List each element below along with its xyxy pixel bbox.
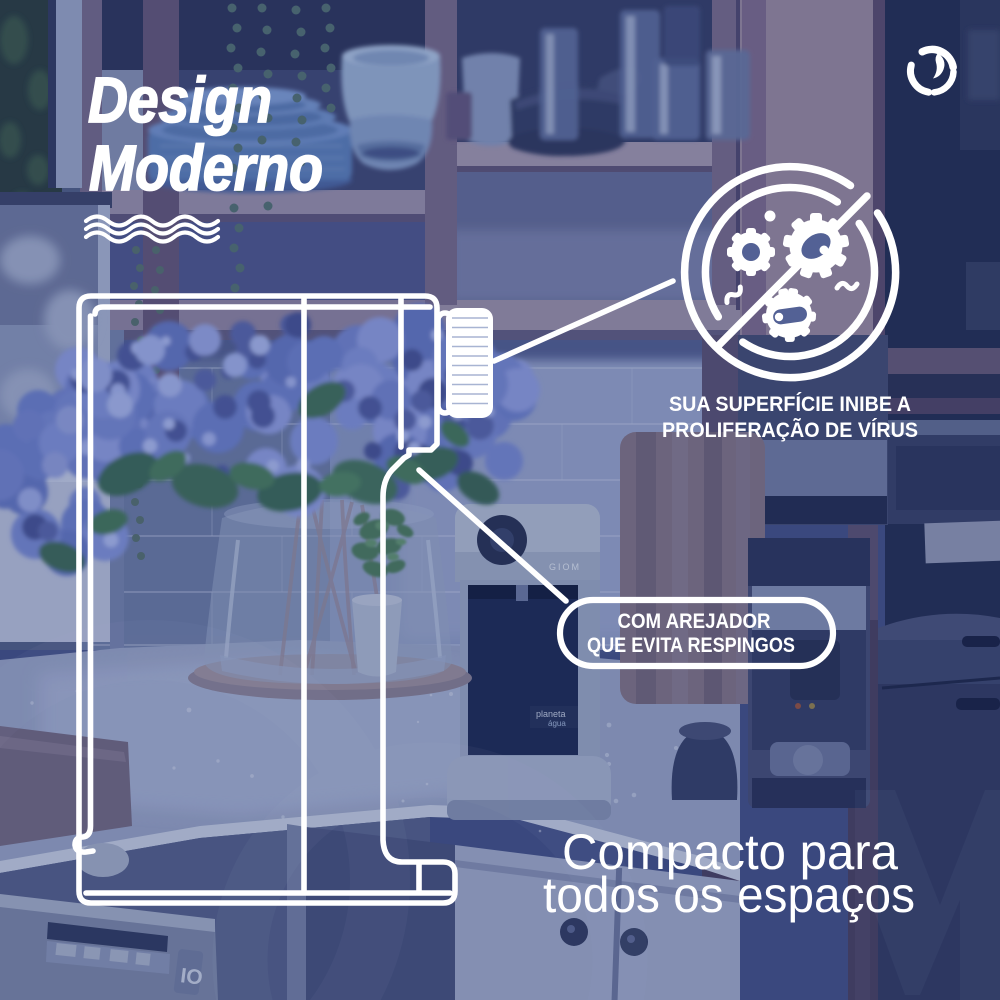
svg-text:SUA SUPERFÍCIE INIBE A: SUA SUPERFÍCIE INIBE A — [669, 391, 911, 416]
svg-text:Design: Design — [88, 64, 272, 136]
svg-text:todos os espaços: todos os espaços — [543, 867, 915, 923]
svg-text:PROLIFERAÇÃO DE VÍRUS: PROLIFERAÇÃO DE VÍRUS — [662, 417, 918, 442]
svg-text:Moderno: Moderno — [89, 132, 323, 204]
svg-text:COM AREJADOR: COM AREJADOR — [618, 609, 771, 633]
svg-text:QUE EVITA RESPINGOS: QUE EVITA RESPINGOS — [587, 633, 795, 657]
